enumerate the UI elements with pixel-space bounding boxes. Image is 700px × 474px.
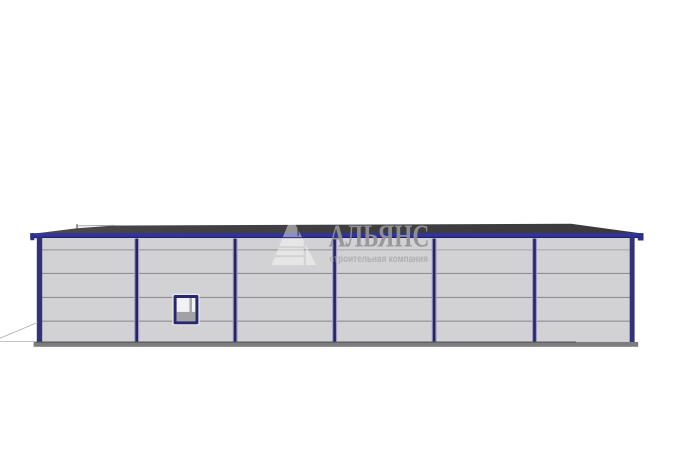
svg-text:АЛЬЯНС: АЛЬЯНС [329, 217, 430, 253]
svg-text:строительная компания: строительная компания [330, 254, 429, 265]
